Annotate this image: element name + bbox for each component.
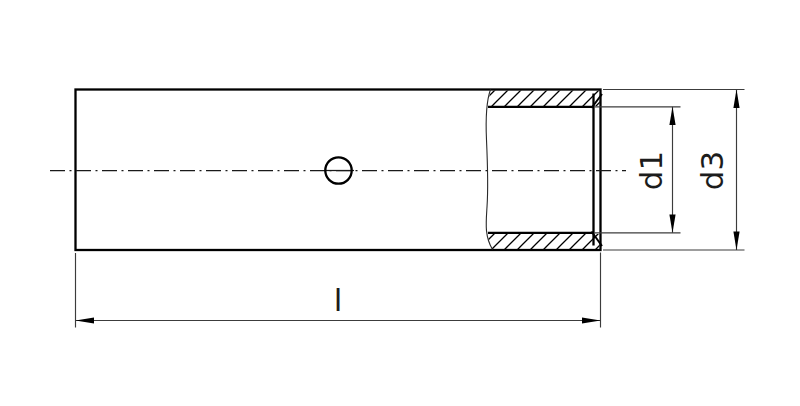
d3-arrow-top [733, 90, 739, 109]
length-arrow-left [76, 317, 95, 323]
part-body-outline [76, 90, 601, 251]
dimension-length: l [76, 253, 601, 328]
dimension-label-inner-diameter: d1 [633, 151, 669, 190]
section-hatch-bottom [487, 234, 600, 249]
length-arrow-right [582, 317, 601, 323]
dimension-outer-diameter: d3 [603, 90, 745, 251]
section-hatch-top [489, 91, 600, 106]
drawing-svg: l d1 d3 [0, 0, 800, 406]
dimension-label-length: l [334, 282, 343, 318]
dimension-inner-diameter: d1 [594, 107, 681, 233]
break-line [486, 90, 492, 250]
d1-arrow-top [669, 107, 675, 125]
d3-arrow-bottom [733, 232, 739, 251]
d1-arrow-bottom [669, 215, 675, 233]
dimension-label-outer-diameter: d3 [694, 151, 730, 190]
technical-drawing-canvas: l d1 d3 [0, 0, 800, 406]
